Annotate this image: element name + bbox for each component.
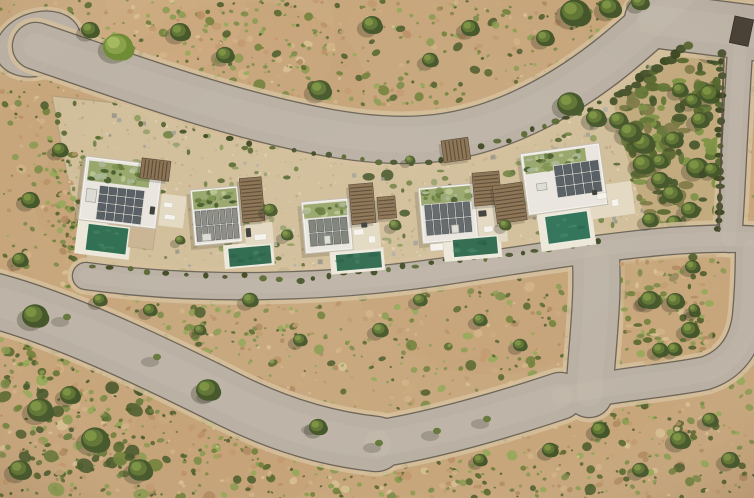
site-plan-svg (0, 0, 754, 498)
vignette-overlay (0, 0, 754, 498)
aerial-site-render (0, 0, 754, 498)
